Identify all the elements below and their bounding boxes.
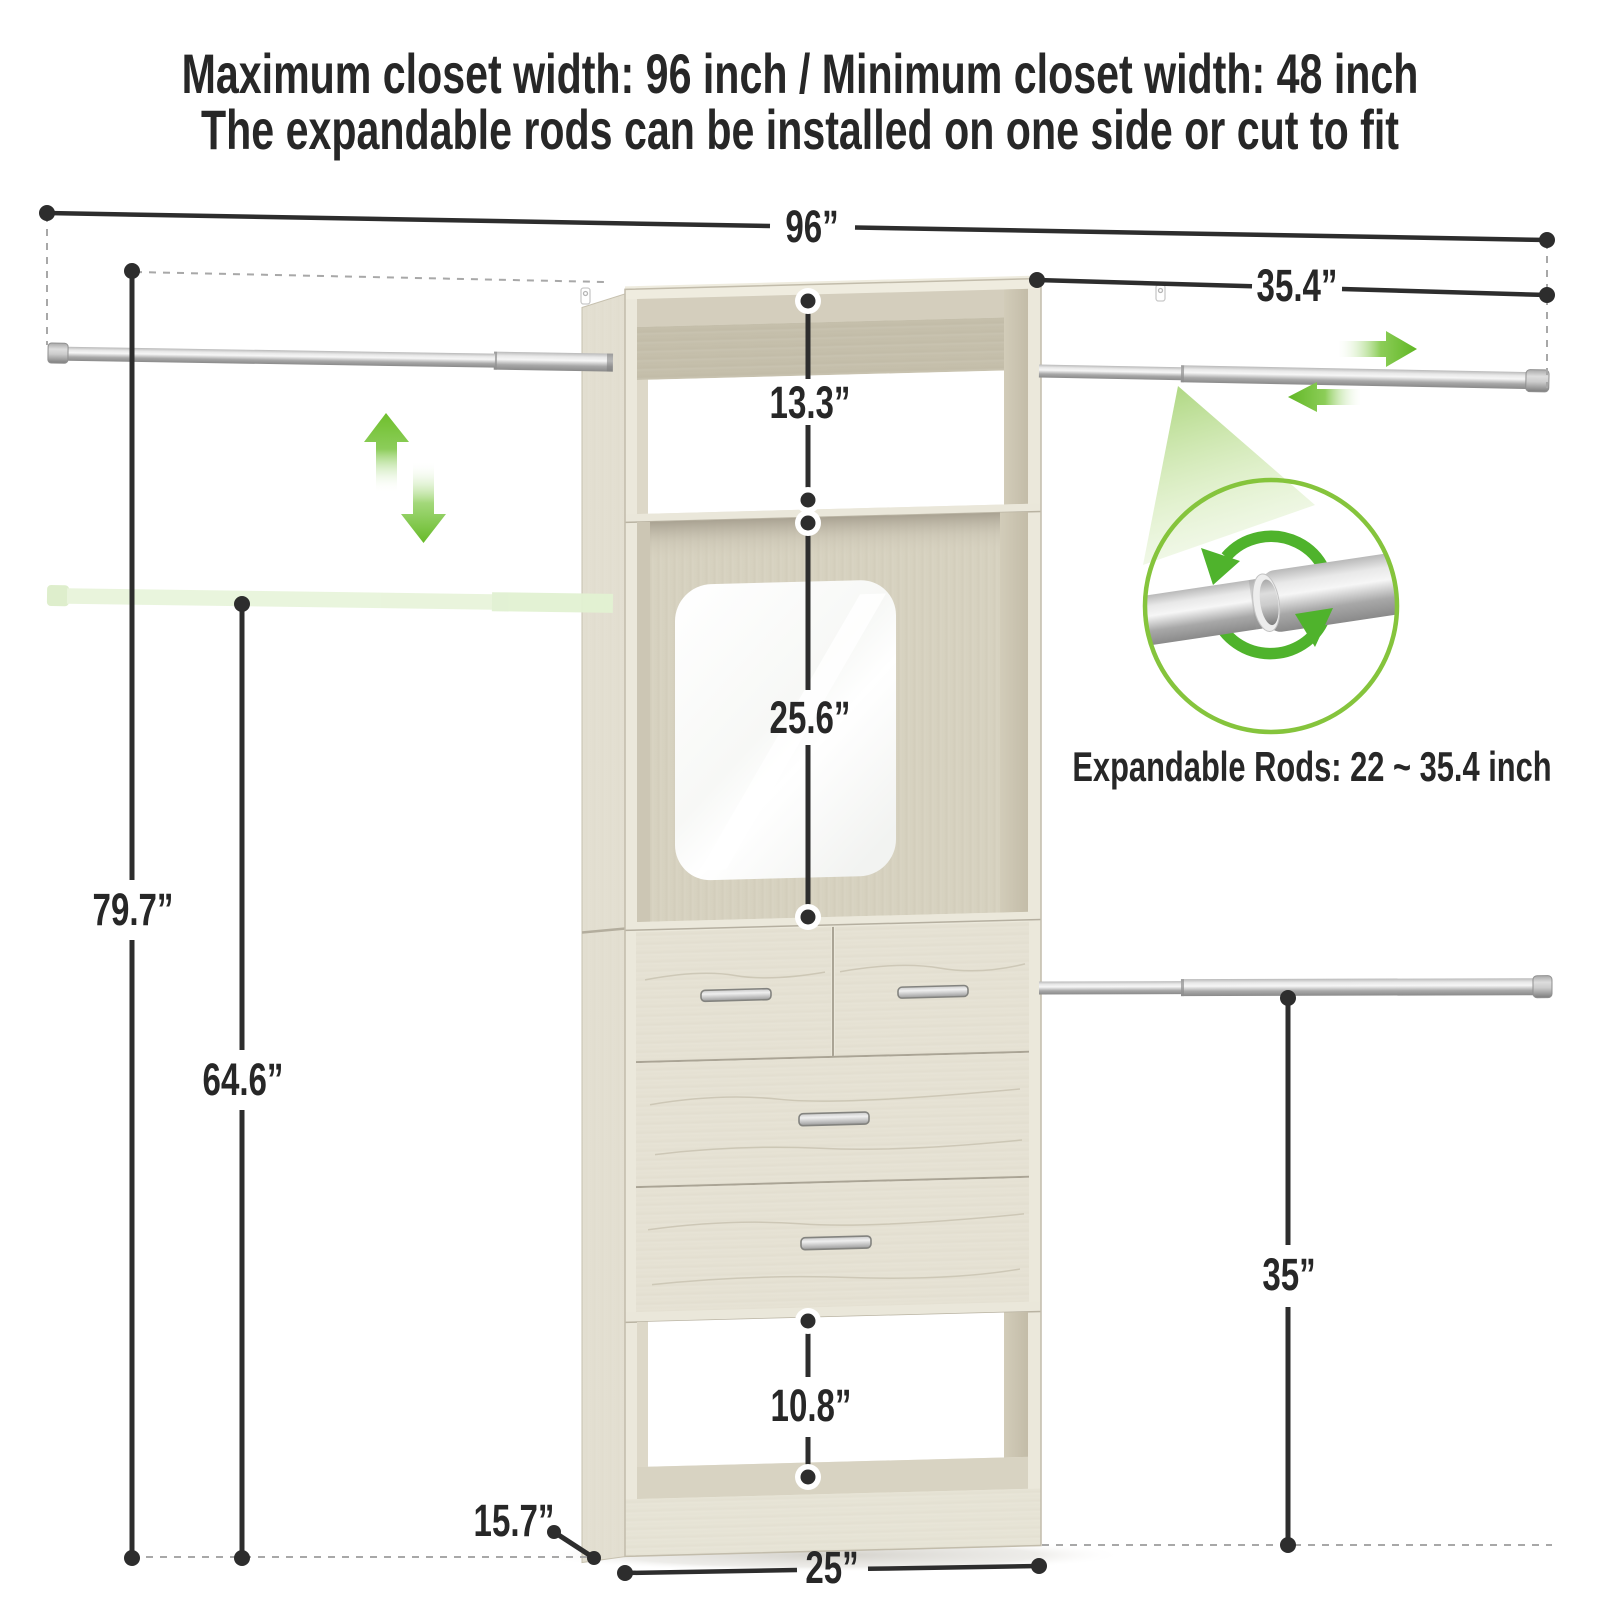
svg-text:The expandable rods can be ins: The expandable rods can be installed on … <box>201 100 1399 162</box>
svg-text:96”: 96” <box>785 202 838 252</box>
svg-text:35”: 35” <box>1262 1250 1315 1300</box>
svg-text:Maximum closet width: 96 inch: Maximum closet width: 96 inch / Minimum … <box>182 44 1419 106</box>
svg-text:Expandable Rods: 22 ~ 35.4 inc: Expandable Rods: 22 ~ 35.4 inch <box>1072 743 1551 790</box>
svg-text:13.3”: 13.3” <box>770 378 851 428</box>
svg-text:79.7”: 79.7” <box>93 885 174 935</box>
svg-text:15.7”: 15.7” <box>474 1496 555 1546</box>
svg-text:35.4”: 35.4” <box>1257 261 1338 311</box>
svg-text:64.6”: 64.6” <box>203 1055 284 1105</box>
svg-text:25”: 25” <box>805 1543 858 1593</box>
svg-text:10.8”: 10.8” <box>771 1381 852 1431</box>
svg-text:25.6”: 25.6” <box>770 693 851 743</box>
